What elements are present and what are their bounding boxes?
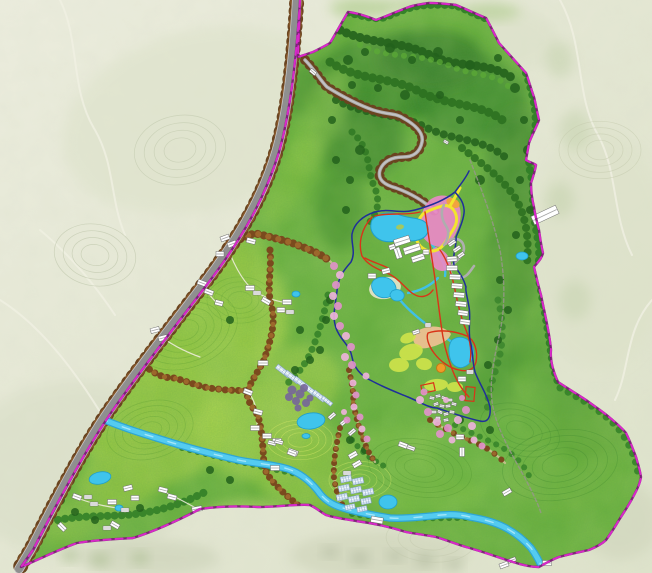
tree-icon — [408, 56, 416, 64]
swimming-pool — [390, 290, 404, 301]
building — [451, 283, 462, 289]
building — [246, 286, 255, 291]
building — [423, 250, 429, 255]
purple-tree-icon — [285, 393, 293, 401]
building — [460, 448, 465, 457]
tree-icon — [136, 504, 144, 512]
building — [253, 291, 261, 295]
building — [439, 404, 444, 408]
site-master-plan-map — [0, 0, 652, 573]
building — [453, 292, 464, 298]
building — [251, 426, 260, 431]
terrain-blob — [448, 560, 462, 570]
blossom-tree-icon — [449, 437, 456, 444]
blossom-tree-icon — [357, 414, 364, 421]
blossom-tree-icon — [416, 396, 424, 404]
tree-icon — [486, 426, 494, 434]
tree-icon — [206, 466, 214, 474]
building — [447, 266, 458, 271]
tree-icon — [342, 206, 350, 214]
tree-icon — [346, 176, 354, 184]
building — [425, 323, 431, 327]
tree-icon — [332, 156, 340, 164]
terrain-blob — [352, 552, 368, 564]
blossom-tree-icon — [334, 302, 342, 310]
blossom-tree-icon — [341, 353, 349, 361]
terrain-blob — [559, 280, 591, 320]
blossom-tree-icon — [351, 404, 358, 411]
building — [432, 411, 437, 414]
pond — [292, 291, 300, 297]
tree-icon — [520, 116, 528, 124]
tree-icon — [71, 508, 79, 516]
building — [458, 310, 469, 316]
building — [429, 396, 434, 400]
lawn — [389, 358, 409, 372]
feature-circle — [437, 364, 446, 373]
map-canvas — [0, 0, 652, 573]
blossom-tree-icon — [347, 343, 355, 351]
blossom-tree-icon — [332, 281, 340, 289]
blossom-tree-icon — [421, 389, 428, 396]
tree-icon — [355, 145, 365, 155]
tree-icon — [456, 116, 464, 124]
purple-tree-icon — [295, 405, 302, 412]
tree-icon — [465, 60, 475, 70]
blossom-tree-icon — [330, 262, 338, 270]
pond — [302, 434, 310, 439]
building — [108, 500, 117, 505]
terrain-blob — [91, 554, 109, 566]
blossom-tree-icon — [363, 373, 370, 380]
blossom-tree-icon — [443, 397, 449, 403]
building — [263, 434, 272, 439]
building — [277, 308, 285, 313]
building — [286, 310, 294, 314]
tree-icon — [526, 206, 534, 214]
blossom-tree-icon — [342, 332, 350, 340]
purple-tree-icon — [307, 395, 314, 402]
building — [460, 319, 471, 325]
blossom-tree-icon — [348, 361, 356, 369]
building — [449, 410, 454, 413]
blossom-tree-icon — [359, 426, 366, 433]
tree-icon — [385, 43, 395, 53]
blossom-tree-icon — [468, 422, 476, 430]
blossom-tree-icon — [459, 395, 465, 401]
tree-icon — [494, 54, 502, 62]
tree-icon — [346, 436, 354, 444]
pond — [516, 252, 528, 260]
building — [449, 274, 460, 279]
terrain-blob — [132, 552, 148, 564]
blossom-tree-icon — [471, 437, 478, 444]
blossom-tree-icon — [330, 312, 338, 320]
building — [271, 466, 280, 471]
building — [447, 256, 457, 262]
blossom-tree-icon — [350, 380, 357, 387]
terrain-blob — [388, 551, 402, 561]
blossom-tree-icon — [436, 430, 444, 438]
blossom-tree-icon — [444, 424, 452, 432]
building — [343, 471, 351, 475]
building — [445, 404, 450, 407]
tree-icon — [348, 81, 356, 89]
tree-icon — [328, 116, 336, 124]
tree-icon — [512, 231, 520, 239]
building — [458, 377, 466, 382]
building — [258, 361, 268, 366]
purple-tree-icon — [292, 397, 300, 405]
tree-icon — [226, 476, 234, 484]
blossom-tree-icon — [424, 408, 432, 416]
blossom-tree-icon — [433, 418, 441, 426]
blossom-tree-icon — [364, 436, 371, 443]
blossom-tree-icon — [479, 443, 486, 450]
tree-icon — [316, 346, 324, 354]
building — [455, 301, 466, 307]
building — [103, 526, 111, 530]
blossom-tree-icon — [454, 416, 462, 424]
blossom-tree-icon — [336, 322, 344, 330]
tree-icon — [226, 316, 234, 324]
blossom-tree-icon — [341, 409, 347, 415]
tree-icon — [91, 516, 99, 524]
building — [90, 502, 98, 506]
tree-icon — [291, 366, 299, 374]
blossom-tree-icon — [336, 271, 344, 279]
purple-tree-icon — [300, 384, 308, 392]
tree-icon — [433, 47, 443, 57]
building — [467, 370, 474, 374]
building — [443, 418, 448, 422]
tree-icon — [374, 84, 382, 92]
blossom-tree-icon — [462, 406, 470, 414]
building — [368, 274, 376, 279]
tree-icon — [516, 176, 524, 184]
blossom-tree-icon — [344, 417, 351, 424]
building — [456, 435, 464, 440]
tree-icon — [400, 90, 410, 100]
tree-icon — [510, 83, 520, 93]
terrain-blob — [62, 550, 78, 562]
building — [121, 508, 129, 512]
building — [131, 496, 139, 501]
pond — [379, 495, 397, 509]
blossom-tree-icon — [329, 292, 337, 300]
terrain-blob — [323, 547, 337, 557]
building — [435, 394, 440, 398]
building — [84, 495, 92, 499]
building — [283, 300, 292, 305]
tree-icon — [322, 316, 330, 324]
tree-icon — [436, 91, 444, 99]
blossom-tree-icon — [353, 392, 360, 399]
tree-icon — [306, 356, 314, 364]
building — [216, 252, 224, 257]
tree-icon — [361, 48, 369, 56]
tree-icon — [504, 306, 512, 314]
tree-icon — [484, 361, 492, 369]
terrain-blob — [546, 42, 574, 78]
tree-icon — [296, 326, 304, 334]
tree-icon — [343, 55, 353, 65]
